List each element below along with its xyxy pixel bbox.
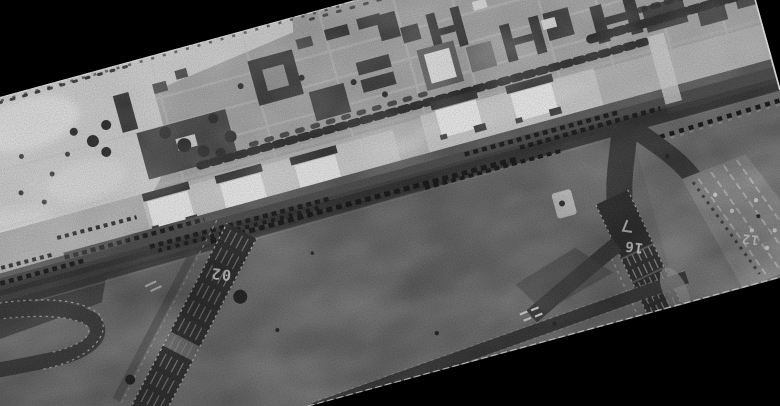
aerial-photo: 02 16 [0, 0, 780, 406]
photo-frame: 02 16 [0, 0, 780, 406]
